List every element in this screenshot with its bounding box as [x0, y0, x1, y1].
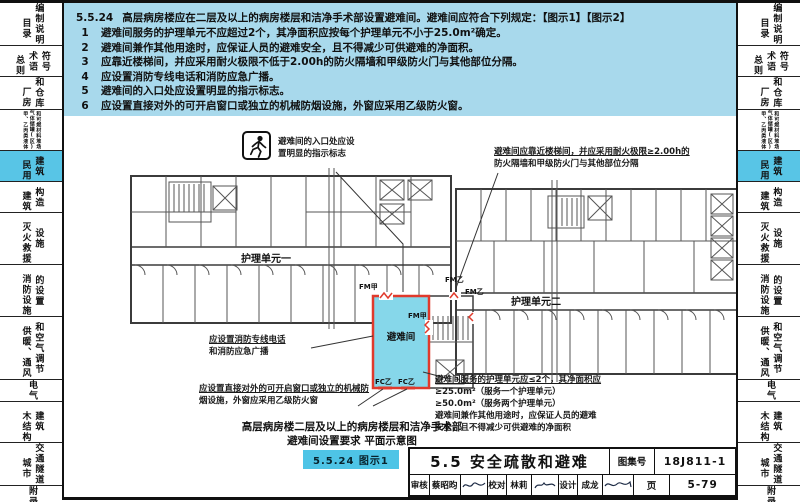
sidebar-tab-label: 消防设施 [758, 274, 768, 316]
sidebar-tab-label: 木结构 [758, 411, 768, 443]
sidebar-tab-tanks-yards[interactable]: 甲、乙丙类液体气体储罐(区)和可燃材料堆场 [738, 110, 800, 152]
sidebar-tab-label: 消防设施 [20, 274, 30, 316]
sidebar-tab-label: 民用 [758, 160, 768, 181]
sidebar-tab-label: 电气 [26, 380, 36, 401]
annotation-line: 置明显的指示标志 [278, 148, 398, 160]
sidebar-tab-label: 目录 [758, 18, 768, 39]
sidebar-tab-label: 编制说明 [33, 3, 43, 45]
fire-door-a-label: FM甲 [408, 312, 427, 320]
sidebar-tab-label: 术语 [26, 51, 36, 72]
design-label: 设计 [559, 475, 579, 495]
right-chapter-sidebar: 目录编制说明总则术语符号厂房和仓库甲、乙丙类液体气体储罐(区)和可燃材料堆场民用… [736, 3, 800, 497]
clause-title: 5.5.24高层病房楼应在二层及以上的病房楼层和洁净手术部设置避难间。避难间应符… [76, 11, 736, 26]
title-block: 5.5 安全疏散和避难 图集号 18J811-1 审核 蔡昭昀 校对 林莉 设计… [408, 447, 737, 497]
sidebar-tab-label: 交通隧道 [33, 443, 43, 485]
sidebar-tab-rescue-facilities[interactable]: 灭火救援设施 [738, 213, 800, 265]
sidebar-tab-hvac[interactable]: 供暖、通风和空气调节 [738, 317, 800, 380]
clause-item-text: 应设置消防专线电话和消防应急广播。 [101, 70, 280, 85]
annotation-line: 防火隔墙和甲级防火门与其他部位分隔 [494, 158, 738, 170]
clause-item-text: 避难间兼作其他用途时，应保证人员的避难安全，且不得减少可供避难的净面积。 [101, 41, 479, 56]
designer-name: 成龙 [578, 475, 602, 495]
sidebar-tab-label: 的设置 [33, 275, 43, 307]
clause-number: 5.5.24 [76, 12, 113, 24]
sidebar-tab-label: 和空气调节 [33, 322, 43, 375]
clause-text: 高层病房楼应在二层及以上的病房楼层和洁净手术部设置避难间。避难间应符合下列规定： [122, 12, 542, 24]
sidebar-tab-label: 交通隧道 [771, 443, 781, 485]
sidebar-tab-label: 构造 [33, 187, 43, 208]
proof-label: 校对 [488, 475, 508, 495]
review-label: 审核 [410, 475, 430, 495]
sidebar-tab-label: 设施 [33, 228, 43, 249]
page-number: 5-79 [670, 475, 735, 495]
clause-item: 3应靠近楼梯间，并应采用耐火极限不低于2.00h的防火隔墙和甲级防火门与其他部位… [76, 55, 736, 70]
bottom-frame-line [0, 497, 800, 500]
sidebar-tab-urban-tunnel[interactable]: 城市交通隧道 [0, 443, 62, 486]
sidebar-tab-label: 编制说明 [771, 3, 781, 45]
sidebar-tab-label: 符号 [39, 51, 49, 72]
sidebar-tab-label: 城市 [758, 458, 768, 479]
proofreader-signature [532, 475, 559, 495]
sidebar-tab-label: 民用 [20, 160, 30, 181]
annotation-line: 避难间应靠近楼梯间，并应采用耐火极限≥2.00h的 [494, 146, 738, 158]
sidebar-tab-label: 建筑 [33, 156, 43, 177]
sidebar-tab-label: 甲、乙丙类液体 [22, 111, 28, 150]
clause-item-number: 3 [79, 55, 91, 70]
sidebar-tab-label: 建筑 [771, 156, 781, 177]
sidebar-tab-label: 建筑 [758, 191, 768, 212]
clause-panel: 5.5.24高层病房楼应在二层及以上的病房楼层和洁净手术部设置避难间。避难间应符… [64, 3, 736, 116]
annotation-line: 避难间设置要求 平面示意图 [172, 435, 532, 449]
clause-item: 4应设置消防专线电话和消防应急广播。 [76, 70, 736, 85]
sidebar-tab-fire-facility-setup[interactable]: 消防设施的设置 [738, 265, 800, 317]
sidebar-tab-label: 建筑 [20, 191, 30, 212]
clause-item-text: 应设置直接对外的可开启窗口或独立的机械防烟设施，外窗应采用乙级防火窗。 [101, 99, 469, 114]
annotation-line: ≥25.0m²（服务一个护理单元） [435, 386, 675, 398]
sidebar-tab-catalog[interactable]: 目录编制说明 [0, 3, 62, 46]
clause-item: 6应设置直接对外的可开启窗口或独立的机械防烟设施，外窗应采用乙级防火窗。 [76, 99, 736, 114]
sidebar-tab-label: 附录 [764, 486, 774, 502]
sidebar-tab-tanks-yards[interactable]: 甲、乙丙类液体气体储罐(区)和可燃材料堆场 [0, 110, 62, 152]
sidebar-tab-timber-building[interactable]: 木结构建筑 [738, 402, 800, 444]
refuge-room-label: 避难间 [387, 331, 416, 343]
clause-item-number: 6 [79, 99, 91, 114]
sidebar-tab-label: 灭火救援 [20, 222, 30, 264]
annotation-stair-separation: 避难间应靠近楼梯间，并应采用耐火极限≥2.00h的防火隔墙和甲级防火门与其他部位… [494, 146, 738, 170]
sidebar-tab-label: 供暖、通风 [758, 326, 768, 379]
annotation-line: ≥50.0m²（服务两个护理单元） [435, 398, 675, 410]
sidebar-tab-civil-building[interactable]: 民用建筑 [0, 151, 62, 182]
sidebar-tab-label: 符号 [777, 51, 787, 72]
sidebar-tab-label: 气体储罐(区) [766, 110, 772, 151]
sidebar-tab-label: 气体储罐(区) [28, 110, 34, 151]
sidebar-tab-label: 厂房 [758, 87, 768, 108]
nursing-unit-2-label: 护理单元二 [511, 295, 561, 308]
figure-number-badge: 5.5.24 图示1 [303, 450, 399, 469]
designer-signature [603, 475, 634, 495]
annotation-entrance-sign: 避难间的入口处应设置明显的指示标志 [278, 136, 398, 160]
sidebar-tab-factory-warehouse[interactable]: 厂房和仓库 [738, 77, 800, 110]
sidebar-tab-civil-building[interactable]: 民用建筑 [738, 151, 800, 182]
sidebar-tab-label: 和可燃材料堆场 [773, 111, 779, 150]
annotation-line: 避难间的入口处应设 [278, 136, 398, 148]
figure-refs: 【图示1】【图示2】 [542, 12, 630, 24]
sidebar-tab-appendix[interactable]: 附录 [738, 486, 800, 502]
fire-door-b-label: FM乙 [465, 288, 484, 296]
annotation-line: 烟设施，外窗应采用乙级防火窗 [199, 395, 429, 407]
proofreader-name: 林莉 [507, 475, 531, 495]
sidebar-tab-label: 建筑 [33, 411, 43, 432]
sidebar-tab-label: 厂房 [20, 87, 30, 108]
clause-item-text: 应靠近楼梯间，并应采用耐火极限不低于2.00h的防火隔墙和甲级防火门与其他部位分… [101, 55, 523, 70]
fire-door-b-label: FM乙 [445, 276, 464, 284]
sidebar-tab-label: 总则 [751, 55, 761, 76]
annotation-openable-window: 应设置直接对外的可开启窗口或独立的机械防烟设施，外窗应采用乙级防火窗 [199, 383, 429, 407]
sidebar-tab-label: 甲、乙丙类液体 [760, 111, 766, 150]
sidebar-tab-label: 建筑 [771, 411, 781, 432]
annotation-line: 高层病房楼二层及以上的病房楼层和洁净手术部 [172, 421, 532, 435]
fire-door-a-label: FM甲 [359, 283, 378, 291]
page-label: 页 [634, 475, 671, 495]
clause-item: 1避难间服务的护理单元不应超过2个，其净面积应按每个护理单元不小于25.0m²确… [76, 26, 736, 41]
annotation-fire-phone: 应设置消防专线电话和消防应急广播 [209, 334, 329, 358]
clause-items: 1避难间服务的护理单元不应超过2个，其净面积应按每个护理单元不小于25.0m²确… [76, 26, 736, 114]
clause-item-number: 1 [79, 26, 91, 41]
figure-caption: 高层病房楼二层及以上的病房楼层和洁净手术部避难间设置要求 平面示意图 [172, 421, 532, 448]
annotation-line: 避难间服务的护理单元应≤2个，其净面积应 [435, 374, 675, 386]
sidebar-tab-label: 目录 [20, 18, 30, 39]
sidebar-tab-label: 设施 [771, 228, 781, 249]
annotation-line: 应设置直接对外的可开启窗口或独立的机械防 [199, 383, 429, 395]
sidebar-tab-label: 木结构 [20, 411, 30, 443]
sidebar-tab-rescue-facilities[interactable]: 灭火救援设施 [0, 213, 62, 265]
nursing-unit-1-label: 护理单元一 [241, 252, 291, 265]
sidebar-tab-electrical[interactable]: 电气 [738, 380, 800, 402]
clause-item-text: 避难间服务的护理单元不应超过2个，其净面积应按每个护理单元不小于25.0m²确定… [101, 26, 507, 41]
sidebar-tab-label: 总则 [13, 55, 23, 76]
clause-item-number: 2 [79, 41, 91, 56]
sidebar-tab-building-construction[interactable]: 建筑构造 [738, 182, 800, 213]
sidebar-tab-appendix[interactable]: 附录 [0, 486, 62, 502]
annotation-line: 和消防应急广播 [209, 346, 329, 358]
left-chapter-sidebar: 目录编制说明总则术语符号厂房和仓库甲、乙丙类液体气体储罐(区)和可燃材料堆场民用… [0, 3, 64, 497]
sidebar-tab-label: 和仓库 [33, 77, 43, 109]
reviewer-name: 蔡昭昀 [430, 475, 461, 495]
sidebar-tab-catalog[interactable]: 目录编制说明 [738, 3, 800, 46]
sidebar-tab-label: 和可燃材料堆场 [35, 111, 41, 150]
sidebar-tab-label: 灭火救援 [758, 222, 768, 264]
sidebar-tab-hvac[interactable]: 供暖、通风和空气调节 [0, 317, 62, 380]
sidebar-tab-label: 电气 [764, 380, 774, 401]
sidebar-tab-urban-tunnel[interactable]: 城市交通隧道 [738, 443, 800, 486]
sidebar-tab-label: 供暖、通风 [20, 326, 30, 379]
clause-item: 5避难间的入口处应设置明显的指示标志。 [76, 84, 736, 99]
sidebar-tab-general-terms[interactable]: 总则术语符号 [0, 46, 62, 77]
sidebar-tab-label: 术语 [764, 51, 774, 72]
sidebar-tab-label: 构造 [771, 187, 781, 208]
clause-item: 2避难间兼作其他用途时，应保证人员的避难安全，且不得减少可供避难的净面积。 [76, 41, 736, 56]
sidebar-tab-label: 附录 [26, 486, 36, 502]
sidebar-tab-timber-building[interactable]: 木结构建筑 [0, 402, 62, 444]
atlas-number-label: 图集号 [610, 449, 655, 474]
reviewer-signature [461, 475, 488, 495]
sidebar-tab-label: 和仓库 [771, 77, 781, 109]
atlas-number: 18J811-1 [655, 449, 735, 474]
annotation-line: 应设置消防专线电话 [209, 334, 329, 346]
clause-item-number: 5 [79, 84, 91, 99]
clause-item-number: 4 [79, 70, 91, 85]
sidebar-tab-label: 的设置 [771, 275, 781, 307]
sidebar-tab-fire-facility-setup[interactable]: 消防设施的设置 [0, 265, 62, 317]
sidebar-tab-electrical[interactable]: 电气 [0, 380, 62, 402]
atlas-page: 目录编制说明总则术语符号厂房和仓库甲、乙丙类液体气体储罐(区)和可燃材料堆场民用… [0, 0, 800, 502]
clause-item-text: 避难间的入口处应设置明显的指示标志。 [101, 84, 290, 99]
section-title: 5.5 安全疏散和避难 [410, 449, 610, 474]
sidebar-tab-general-terms[interactable]: 总则术语符号 [738, 46, 800, 77]
sidebar-tab-building-construction[interactable]: 建筑构造 [0, 182, 62, 213]
sidebar-tab-factory-warehouse[interactable]: 厂房和仓库 [0, 77, 62, 110]
exit-sign-running-man-icon [241, 130, 273, 162]
sidebar-tab-label: 和空气调节 [771, 322, 781, 375]
sidebar-tab-label: 城市 [20, 458, 30, 479]
